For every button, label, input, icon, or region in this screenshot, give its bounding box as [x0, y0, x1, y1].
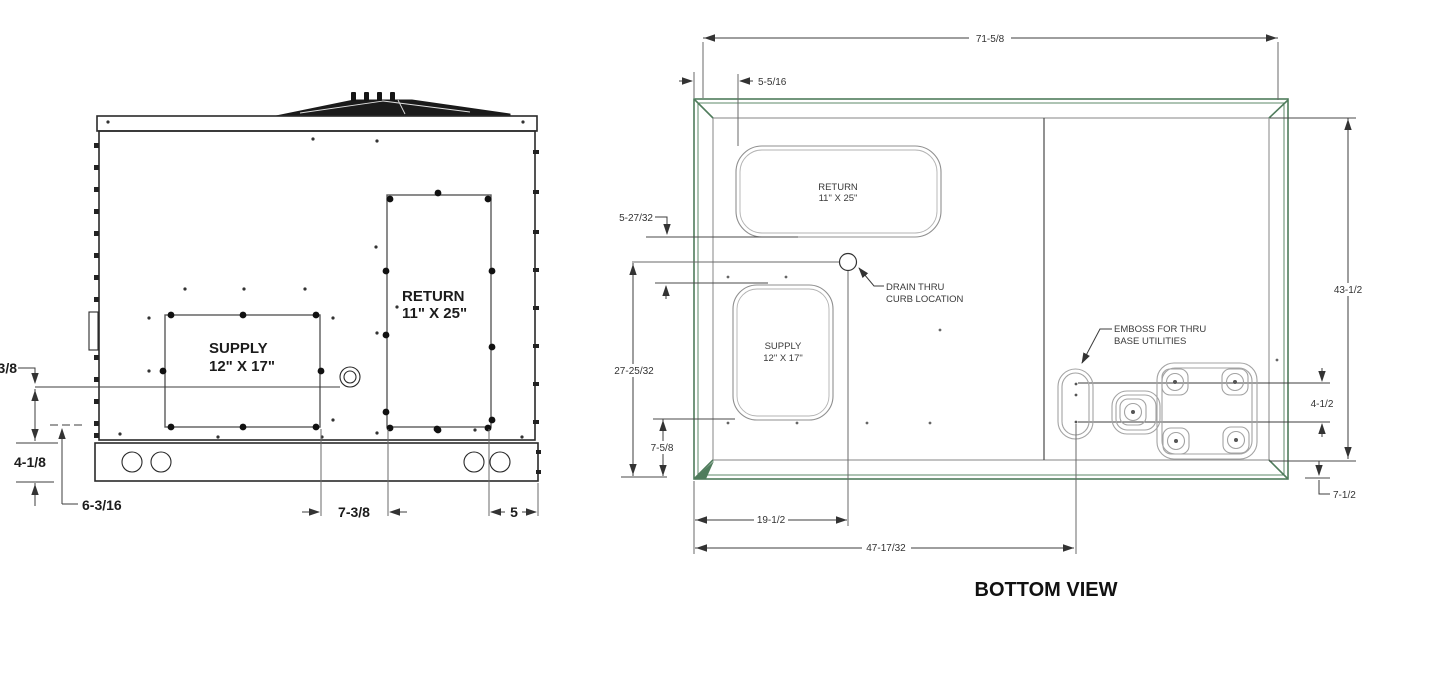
- drawing-canvas: SUPPLY 12" X 17" RETURN 11" X 25": [0, 0, 1442, 682]
- dim-utility-from-edge: 7-1/2: [1333, 490, 1356, 501]
- dim-right-offset: 5: [510, 504, 518, 520]
- dim-return-supply-gap: 5-27/32: [619, 213, 653, 224]
- supply-label-line1: SUPPLY: [209, 340, 268, 357]
- return-label-line2: 11" X 25": [402, 305, 467, 322]
- dim-drain-from-edge: 27-25/32: [614, 366, 654, 377]
- return-label-line1: RETURN: [402, 288, 465, 305]
- dim-return-inset: 5-5/16: [758, 77, 787, 88]
- bv-return-label-line2: 11" X 25": [819, 193, 858, 204]
- dim-drain-offset: 19-1/2: [757, 515, 786, 526]
- bottom-view: RETURN 11" X 25" SUPPLY 12" X 17" DRAIN …: [611, 31, 1366, 601]
- side-view-dimensions: [16, 368, 538, 516]
- supply-label-line2: 12" X 17": [209, 358, 275, 375]
- side-view: SUPPLY 12" X 17" RETURN 11" X 25": [0, 92, 541, 520]
- emboss-leader: [1082, 329, 1112, 363]
- emboss-callout-line1: EMBOSS FOR THRU: [1114, 324, 1206, 335]
- bv-extension-lines: [621, 42, 1356, 554]
- bottom-view-title: BOTTOM VIEW: [975, 579, 1118, 601]
- drain-callout-line1: DRAIN THRU: [886, 282, 945, 293]
- bv-dots: [727, 276, 1279, 425]
- bv-supply-label-line1: SUPPLY: [765, 341, 802, 352]
- base-knockouts: [122, 452, 510, 472]
- emboss-grommets: [1120, 369, 1249, 454]
- dim-overall-width: 71-5/8: [976, 34, 1005, 45]
- cabinet-top-rail: [97, 116, 537, 131]
- dim-left-offset: 6-3/16: [82, 497, 122, 513]
- dim-label-backplates: [611, 31, 1366, 554]
- dim-emboss-offset: 47-17/32: [866, 543, 906, 554]
- drain-grommet-inner: [344, 371, 356, 383]
- drain-hole: [840, 254, 857, 271]
- dim-utility-rows: 4-1/2: [1311, 399, 1334, 410]
- drain-leader: [859, 268, 884, 286]
- dim-mid-offset: 7-3/8: [338, 504, 370, 520]
- drain-grommet-outer: [340, 367, 360, 387]
- emboss-callout-line2: BASE UTILITIES: [1114, 336, 1186, 347]
- disconnect-handle: [89, 312, 98, 350]
- dim-overall-depth: 43-1/2: [1334, 285, 1363, 296]
- dim-supply-from-edge: 7-5/8: [651, 443, 674, 454]
- dim-clipped-left: 3/8: [0, 360, 17, 376]
- hvac-dimension-drawing: SUPPLY 12" X 17" RETURN 11" X 25": [0, 0, 1442, 682]
- dim-base-height: 4-1/8: [14, 454, 46, 470]
- bv-dimension-lines: [633, 38, 1348, 548]
- bv-supply-label-line2: 12" X 17": [763, 353, 803, 364]
- drain-callout-line2: CURB LOCATION: [886, 294, 964, 305]
- bv-return-label-line1: RETURN: [818, 182, 858, 193]
- bolt-dots-small: [106, 120, 524, 438]
